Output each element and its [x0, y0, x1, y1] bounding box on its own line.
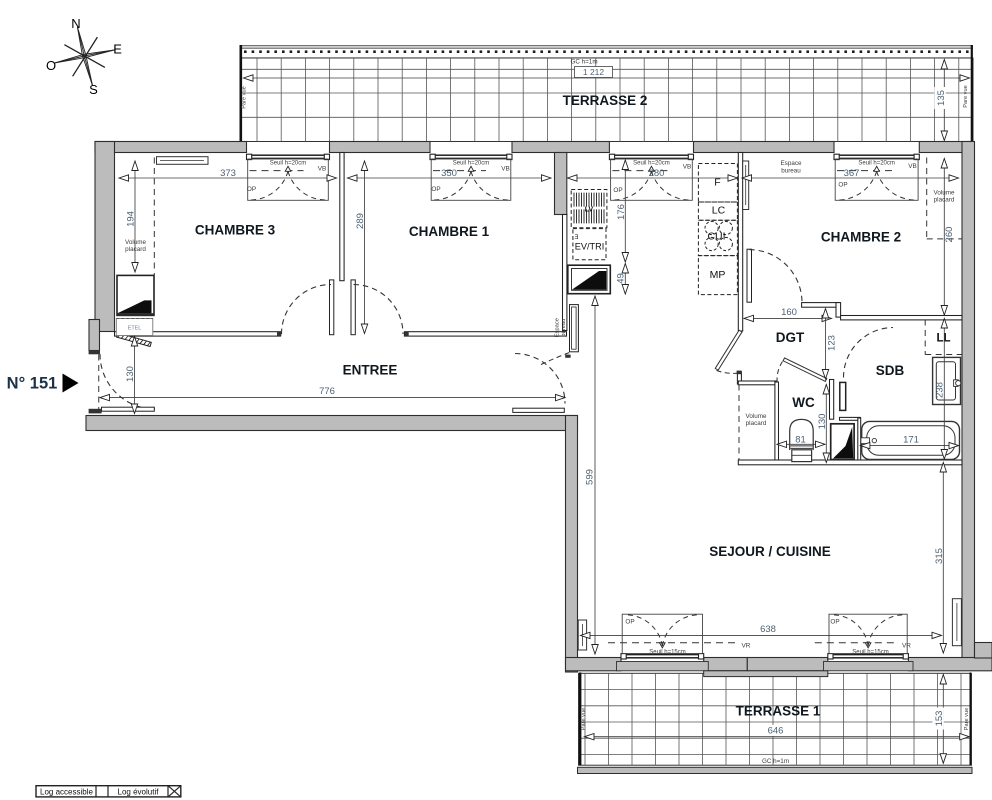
svg-text:289: 289 [355, 213, 366, 229]
svg-text:VB: VB [683, 164, 692, 171]
svg-text:315: 315 [934, 548, 945, 564]
svg-text:238: 238 [935, 382, 946, 398]
svg-text:160: 160 [781, 307, 797, 318]
svg-text:TERRASSE 2: TERRASSE 2 [563, 93, 648, 108]
svg-text:SEJOUR / CUISINE: SEJOUR / CUISINE [709, 544, 831, 559]
svg-text:367: 367 [844, 168, 860, 179]
svg-text:TERRASSE 1: TERRASSE 1 [736, 704, 821, 719]
svg-text:LL: LL [936, 333, 950, 345]
svg-text:VB: VB [908, 163, 917, 170]
svg-text:CHAMBRE 3: CHAMBRE 3 [195, 223, 276, 238]
svg-text:130: 130 [125, 366, 136, 382]
svg-text:VR: VR [902, 642, 911, 649]
svg-text:GC h=1m: GC h=1m [762, 758, 789, 765]
svg-text:N° 151: N° 151 [7, 375, 58, 393]
svg-text:638: 638 [760, 624, 776, 635]
svg-text:N: N [71, 16, 80, 31]
svg-text:LV: LV [585, 207, 594, 214]
svg-text:49: 49 [615, 273, 626, 284]
svg-text:Pare vue: Pare vue [581, 708, 587, 730]
svg-text:OP: OP [838, 182, 847, 189]
svg-text:OP: OP [625, 619, 634, 626]
svg-text:OP: OP [830, 619, 839, 626]
svg-text:S: S [89, 82, 98, 97]
svg-text:VR: VR [742, 642, 751, 649]
svg-text:O: O [46, 58, 56, 73]
svg-text:LC: LC [712, 205, 726, 217]
svg-text:Log évolutif: Log évolutif [118, 787, 160, 796]
svg-text:153: 153 [934, 711, 945, 727]
svg-text:ETEL: ETEL [128, 326, 141, 332]
svg-text:123: 123 [826, 335, 837, 351]
svg-text:OP: OP [613, 187, 622, 194]
svg-text:bureau: bureau [561, 319, 567, 337]
svg-text:E: E [113, 42, 122, 57]
svg-text:176: 176 [616, 204, 627, 220]
svg-text:CUI: CUI [707, 230, 725, 242]
svg-text:1 212: 1 212 [583, 67, 605, 77]
svg-text:Espace: Espace [554, 318, 560, 337]
svg-text:280: 280 [649, 168, 665, 179]
svg-text:MP: MP [710, 269, 726, 281]
svg-text:171: 171 [903, 435, 919, 446]
svg-text:194: 194 [126, 211, 137, 227]
svg-text:bureau: bureau [781, 167, 801, 174]
svg-text:SDB: SDB [876, 363, 905, 378]
svg-text:EV/TRI: EV/TRI [575, 242, 605, 252]
svg-text:Pare vue: Pare vue [241, 86, 247, 108]
svg-text:Pare vue: Pare vue [964, 708, 970, 730]
svg-text:135: 135 [936, 90, 947, 106]
svg-text:Log accessible: Log accessible [40, 787, 93, 796]
svg-text:GC h=1m: GC h=1m [570, 59, 597, 66]
svg-text:646: 646 [768, 725, 784, 736]
svg-text:OP: OP [431, 186, 440, 193]
svg-text:VB: VB [501, 165, 510, 172]
svg-text:CHAMBRE 2: CHAMBRE 2 [821, 230, 901, 245]
svg-text:Ǝ: Ǝ [574, 235, 578, 241]
svg-text:Volume: Volume [125, 239, 147, 246]
svg-text:placard: placard [746, 420, 767, 427]
svg-text:Seuil h=15cm: Seuil h=15cm [852, 649, 889, 655]
svg-text:373: 373 [220, 168, 236, 179]
svg-text:CHAMBRE 1: CHAMBRE 1 [409, 224, 490, 239]
svg-text:599: 599 [585, 469, 596, 485]
svg-text:placard: placard [125, 246, 146, 253]
svg-text:OP: OP [247, 186, 256, 193]
svg-text:260: 260 [944, 227, 955, 243]
svg-text:Volume: Volume [745, 413, 767, 420]
svg-text:Seuil h=15cm: Seuil h=15cm [649, 649, 686, 655]
svg-text:DGT: DGT [776, 330, 805, 345]
svg-text:776: 776 [319, 386, 335, 397]
svg-text:ENTREE: ENTREE [343, 363, 398, 378]
svg-text:VB: VB [318, 165, 327, 172]
svg-text:Pare vue: Pare vue [963, 85, 969, 107]
svg-text:350: 350 [441, 168, 457, 179]
svg-text:81: 81 [795, 434, 806, 445]
svg-text:Espace: Espace [780, 160, 802, 167]
svg-text:130: 130 [817, 414, 828, 430]
svg-text:WC: WC [792, 395, 815, 410]
